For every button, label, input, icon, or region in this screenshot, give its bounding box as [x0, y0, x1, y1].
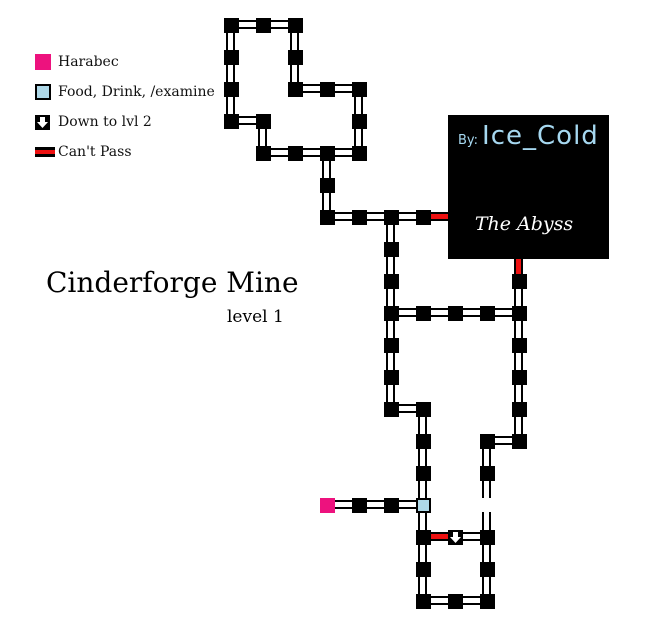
harabec-square-icon — [35, 54, 51, 70]
byline: By: Ice_Cold — [458, 121, 599, 151]
map-room — [384, 402, 399, 417]
examine-room — [416, 498, 431, 513]
corridor-link — [334, 212, 352, 221]
harabec-room — [320, 498, 335, 513]
map-room — [480, 466, 495, 481]
cant-pass-bar-icon — [35, 147, 55, 157]
corridor-link — [302, 148, 320, 157]
map-room — [512, 370, 527, 385]
map-room — [512, 338, 527, 353]
corridor-link — [322, 192, 331, 210]
map-room — [224, 114, 239, 129]
corridor-link — [514, 320, 523, 338]
corridor-link — [430, 596, 448, 605]
corridor-link — [494, 308, 512, 317]
map-room — [288, 82, 303, 97]
corridor-link — [418, 576, 427, 594]
map-room — [352, 146, 367, 161]
corridor-link — [386, 224, 395, 242]
corridor-link — [290, 64, 299, 82]
corridor-link — [386, 384, 395, 402]
corridor-link — [366, 212, 384, 221]
map-room — [384, 338, 399, 353]
legend-label: Harabec — [58, 54, 119, 70]
map-room — [224, 82, 239, 97]
corridor-link — [386, 288, 395, 306]
corridor-link — [418, 416, 427, 434]
corridor-link — [418, 544, 427, 562]
map-room — [288, 50, 303, 65]
map-room — [224, 18, 239, 33]
legend-item-cantpass: Can't Pass — [35, 144, 215, 160]
map-room — [384, 306, 399, 321]
corridor-link — [226, 32, 235, 50]
map-room — [384, 370, 399, 385]
map-room — [448, 594, 463, 609]
legend-label: Food, Drink, /examine — [58, 84, 215, 100]
corridor-link — [514, 416, 523, 434]
corridor-link — [290, 32, 299, 50]
examine-square-icon — [35, 84, 51, 100]
corridor-link — [494, 436, 512, 445]
legend: Harabec Food, Drink, /examine Down to lv… — [35, 54, 215, 174]
mine-map-canvas: Harabec Food, Drink, /examine Down to lv… — [0, 0, 656, 636]
map-room — [320, 210, 335, 225]
corridor-link — [270, 20, 288, 29]
map-room — [480, 562, 495, 577]
corridor-link — [482, 480, 491, 498]
map-room — [480, 594, 495, 609]
corridor-link — [482, 576, 491, 594]
map-room — [384, 498, 399, 513]
legend-item-harabec: Harabec — [35, 54, 215, 70]
map-room — [416, 434, 431, 449]
map-room — [416, 594, 431, 609]
map-room — [256, 114, 271, 129]
map-room — [288, 146, 303, 161]
page-subtitle: level 1 — [227, 307, 284, 327]
map-room — [288, 18, 303, 33]
map-room — [224, 50, 239, 65]
author-name: Ice_Cold — [482, 121, 599, 151]
legend-item-down: Down to lvl 2 — [35, 114, 215, 130]
corridor-link — [462, 532, 480, 541]
cant-pass-link — [430, 532, 448, 541]
corridor-link — [322, 160, 331, 178]
map-room — [480, 530, 495, 545]
corridor-link — [482, 448, 491, 466]
map-room — [384, 242, 399, 257]
map-room — [416, 402, 431, 417]
map-room — [256, 18, 271, 33]
page-title: Cinderforge Mine — [46, 266, 299, 299]
corridor-link — [302, 84, 320, 93]
map-room — [512, 402, 527, 417]
down-arrow-icon — [35, 115, 50, 130]
corridor-link — [238, 116, 256, 125]
map-room — [416, 466, 431, 481]
corridor-link — [430, 308, 448, 317]
author-info-box: By: Ice_Cold The Abyss — [448, 115, 609, 259]
map-room — [512, 434, 527, 449]
corridor-link — [418, 448, 427, 466]
map-room — [480, 306, 495, 321]
corridor-link — [514, 384, 523, 402]
map-room — [512, 274, 527, 289]
corridor-link — [482, 512, 491, 530]
down-arrow-icon — [449, 531, 462, 544]
map-room — [416, 210, 431, 225]
cant-pass-link — [430, 212, 448, 221]
corridor-link — [386, 256, 395, 274]
corridor-link — [226, 64, 235, 82]
corridor-link — [398, 212, 416, 221]
legend-item-examine: Food, Drink, /examine — [35, 84, 215, 100]
corridor-link — [514, 288, 523, 306]
corridor-link — [398, 404, 416, 413]
corridor-link — [238, 20, 256, 29]
corridor-link — [270, 148, 288, 157]
map-room — [416, 562, 431, 577]
map-room — [480, 434, 495, 449]
map-room — [352, 114, 367, 129]
corridor-link — [226, 96, 235, 114]
legend-label: Can't Pass — [58, 144, 132, 160]
map-room — [384, 274, 399, 289]
map-room — [416, 306, 431, 321]
map-room — [352, 210, 367, 225]
map-room — [384, 210, 399, 225]
corridor-link — [462, 308, 480, 317]
map-room — [448, 306, 463, 321]
map-room — [352, 82, 367, 97]
map-room — [256, 146, 271, 161]
corridor-link — [334, 84, 352, 93]
corridor-link — [354, 128, 363, 146]
corridor-link — [482, 544, 491, 562]
corridor-link — [366, 500, 384, 509]
map-room — [320, 178, 335, 193]
corridor-link — [334, 500, 352, 509]
corridor-link — [354, 96, 363, 114]
corridor-link — [334, 148, 352, 157]
corridor-link — [398, 308, 416, 317]
map-room — [352, 498, 367, 513]
corridor-link — [258, 128, 267, 146]
map-room — [416, 530, 431, 545]
legend-label: Down to lvl 2 — [58, 114, 152, 130]
map-room — [320, 146, 335, 161]
corridor-link — [462, 596, 480, 605]
by-label: By: — [458, 133, 478, 148]
corridor-link — [386, 320, 395, 338]
map-room — [512, 306, 527, 321]
corridor-link — [398, 500, 416, 509]
corridor-link — [418, 512, 427, 530]
corridor-link — [514, 352, 523, 370]
map-room — [320, 82, 335, 97]
down-to-lvl2-room — [448, 530, 463, 545]
corridor-link — [418, 480, 427, 498]
corridor-link — [386, 352, 395, 370]
zone-name: The Abyss — [448, 213, 600, 235]
